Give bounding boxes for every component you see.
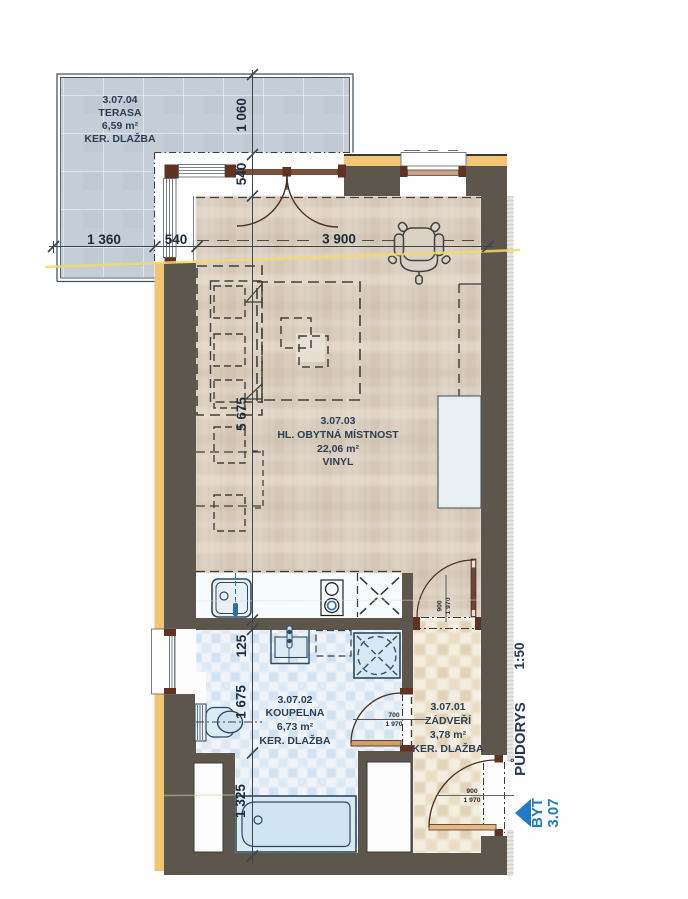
svg-text:700: 700 (388, 712, 400, 719)
svg-text:KER. DLAŽBA: KER. DLAŽBA (412, 742, 484, 755)
svg-text:3.07.03: 3.07.03 (320, 415, 355, 427)
svg-text:125: 125 (234, 634, 249, 657)
svg-text:3.07.01: 3.07.01 (430, 701, 465, 713)
svg-text:1 060: 1 060 (234, 98, 249, 132)
svg-text:1 970: 1 970 (463, 797, 480, 804)
svg-text:3.07.04: 3.07.04 (102, 94, 137, 106)
svg-text:3.07.02: 3.07.02 (277, 694, 312, 706)
svg-text:1 360: 1 360 (87, 232, 121, 247)
svg-text:900: 900 (466, 788, 478, 795)
svg-text:540: 540 (234, 163, 249, 186)
svg-text:TERASA: TERASA (98, 107, 142, 119)
svg-text:6,73 m²: 6,73 m² (277, 721, 314, 733)
svg-text:VINYL: VINYL (323, 456, 355, 468)
svg-text:3.07: 3.07 (545, 798, 562, 827)
svg-text:22,06 m²: 22,06 m² (317, 443, 360, 455)
svg-text:KOUPELNA: KOUPELNA (266, 707, 325, 719)
svg-text:3 900: 3 900 (322, 232, 356, 247)
svg-text:5 675: 5 675 (234, 397, 249, 431)
svg-text:900: 900 (437, 600, 444, 612)
svg-text:6,59 m²: 6,59 m² (102, 120, 139, 132)
svg-text:540: 540 (165, 232, 188, 247)
svg-text:1 325: 1 325 (233, 784, 248, 818)
svg-text:3,78 m²: 3,78 m² (430, 729, 467, 741)
svg-text:PŮDORYS: PŮDORYS (510, 702, 529, 776)
svg-text:1 675: 1 675 (234, 685, 249, 719)
svg-text:1 970: 1 970 (385, 721, 402, 728)
svg-text:1:50: 1:50 (512, 642, 527, 669)
svg-text:KER. DLAŽBA: KER. DLAŽBA (84, 132, 156, 145)
svg-text:KER. DLAŽBA: KER. DLAŽBA (259, 734, 331, 747)
svg-text:HL. OBYTNÁ MÍSTNOST: HL. OBYTNÁ MÍSTNOST (277, 428, 399, 441)
svg-text:BYT: BYT (529, 798, 546, 828)
svg-text:ZÁDVEŘÍ: ZÁDVEŘÍ (425, 714, 472, 727)
